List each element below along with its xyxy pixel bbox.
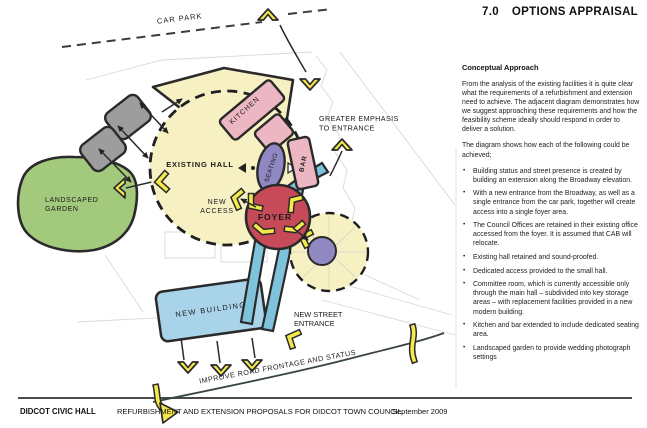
list-lead-paragraph: The diagram shows how each of the follow… <box>462 141 640 159</box>
new-access-label-line2: ACCESS <box>200 208 234 215</box>
bullet-item: Dedicated access provided to the small h… <box>462 267 640 276</box>
bullet-item: Kitchen and bar extended to include dedi… <box>462 321 640 339</box>
conceptual-approach-heading: Conceptual Approach <box>462 63 640 73</box>
foyer-label: FOYER <box>258 212 292 222</box>
emphasis-label-line1: GREATER EMPHASIS <box>319 114 399 123</box>
new-access-label-line1: NEW <box>208 199 227 206</box>
bullet-item: Committee room, which is currently acces… <box>462 280 640 316</box>
bullet-item: Building status and street presence is c… <box>462 167 640 185</box>
bullet-item: The Council Offices are retained in thei… <box>462 221 640 248</box>
small-hall-core <box>308 237 336 265</box>
entrance-emphasis: GREATER EMPHASIS TO ENTRANCE <box>319 114 399 176</box>
conceptual-approach-panel: Conceptual Approach From the analysis of… <box>462 63 640 367</box>
footer-description: REFURBISHMENT AND EXTENSION PROPOSALS FO… <box>117 407 402 416</box>
section-number: 7.0 <box>482 6 499 18</box>
bullet-list: Building status and street presence is c… <box>462 167 640 362</box>
section-title: OPTIONS APPRAISAL <box>512 6 638 18</box>
footer-project-name: DIDCOT CIVIC HALL <box>20 407 96 416</box>
garden-label-line1: LANDSCAPED <box>45 197 98 204</box>
bullet-item: Existing hall retained and sound-proofed… <box>462 253 640 262</box>
landscaped-garden: LANDSCAPED GARDEN <box>18 157 156 251</box>
car-park-label: CAR PARK <box>156 11 203 26</box>
street-entrance-label-line2: ENTRANCE <box>294 319 335 328</box>
street-entrance-label-line1: NEW STREET <box>294 310 343 319</box>
new-street-entrance: NEW STREET ENTRANCE <box>289 310 343 346</box>
page-title: 7.0OPTIONS APPRAISAL <box>400 6 638 18</box>
garden-label-line2: GARDEN <box>45 206 79 213</box>
car-park-up-arrow <box>258 9 278 20</box>
road-left-arrow <box>156 387 178 423</box>
bullet-item: Landscaped garden to provide wedding pho… <box>462 344 640 362</box>
road-right-arrow <box>412 327 414 360</box>
intro-paragraph: From the analysis of the existing facili… <box>462 80 640 135</box>
car-park-down-arrow <box>300 79 320 90</box>
emphasis-label-line2: TO ENTRANCE <box>319 124 375 133</box>
emphasis-up-arrow <box>332 139 352 150</box>
footer-date: September 2009 <box>392 407 447 416</box>
road-label: IMPROVE ROAD FRONTAGE AND STATUS <box>198 348 356 386</box>
existing-hall-label: EXISTING HALL <box>166 160 234 169</box>
bullet-item: With a new entrance from the Broadway, a… <box>462 189 640 216</box>
